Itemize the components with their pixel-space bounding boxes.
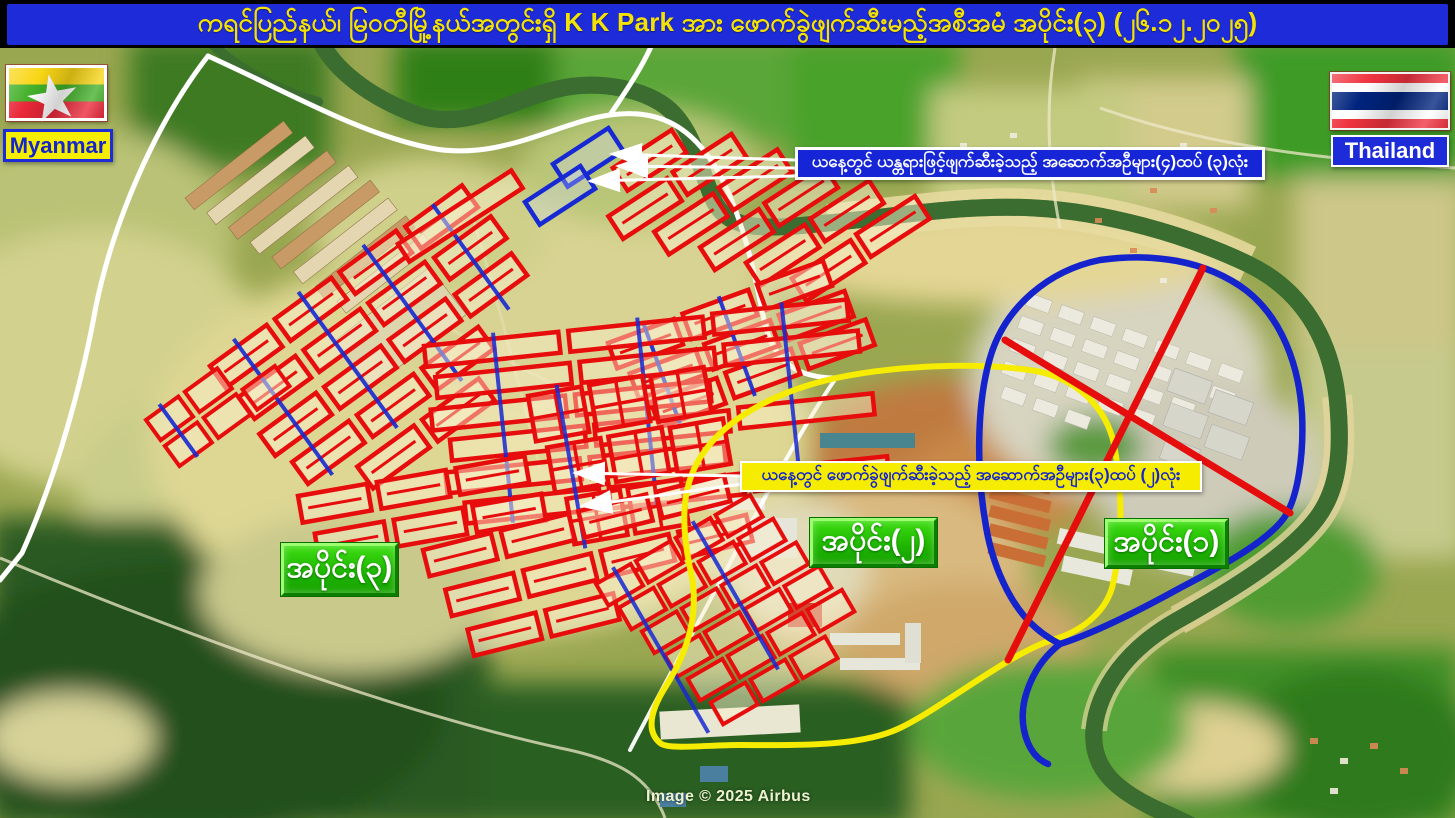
page: { "title_bar": { "text": "ကရင်ပြည်နယ်၊ မ…: [0, 0, 1455, 818]
flag-sheen: [9, 68, 104, 118]
myanmar-label: Myanmar: [3, 129, 113, 162]
region-label-part3: အပိုင်း(၃): [281, 543, 398, 596]
region-label-part2: အပိုင်း(၂): [810, 518, 937, 567]
image-attribution: Image © 2025 Airbus: [646, 788, 811, 806]
myanmar-flag: [6, 65, 107, 121]
callout-blast-text: ယနေ့တွင် ဖောက်ခွဲဖျက်ဆီးခဲ့သည့် အဆောက်အဦ…: [762, 464, 1181, 489]
region-label-part1-text: အပိုင်း(၁): [1114, 521, 1220, 566]
callout-machinery-text: ယနေ့တွင် ယန္တရားဖြင့်ဖျက်ဆီးခဲ့သည့် အဆော…: [812, 151, 1248, 176]
region-label-part2-text: အပိုင်း(၂): [822, 520, 926, 565]
callout-blast-destroyed: ယနေ့တွင် ဖောက်ခွဲဖျက်ဆီးခဲ့သည့် အဆောက်အဦ…: [740, 461, 1202, 492]
region-label-part3-text: အပိုင်း(၃): [287, 547, 393, 592]
page-title: ကရင်ပြည်နယ်၊ မြဝတီမြို့နယ်အတွင်းရှိ K K …: [198, 5, 1258, 44]
attribution-text: Image © 2025 Airbus: [646, 788, 811, 805]
flag-sheen: [1332, 74, 1448, 128]
thailand-label-text: Thailand: [1345, 138, 1435, 164]
callout-machinery-destroyed: ယနေ့တွင် ယန္တရားဖြင့်ဖျက်ဆီးခဲ့သည့် အဆော…: [795, 147, 1265, 180]
title-bar-background: ကရင်ပြည်နယ်၊ မြဝတီမြို့နယ်အတွင်းရှိ K K …: [7, 4, 1448, 45]
thailand-label: Thailand: [1331, 135, 1449, 167]
region-label-part1: အပိုင်း(၁): [1105, 519, 1228, 568]
title-bar: ကရင်ပြည်နယ်၊ မြဝတီမြို့နယ်အတွင်းရှိ K K …: [0, 0, 1455, 48]
satellite-map: Myanmar Thailand ယနေ့တွင် ယန္တရားဖြင့်ဖျ…: [0, 48, 1455, 818]
myanmar-label-text: Myanmar: [10, 133, 107, 159]
thailand-flag: [1330, 72, 1450, 130]
